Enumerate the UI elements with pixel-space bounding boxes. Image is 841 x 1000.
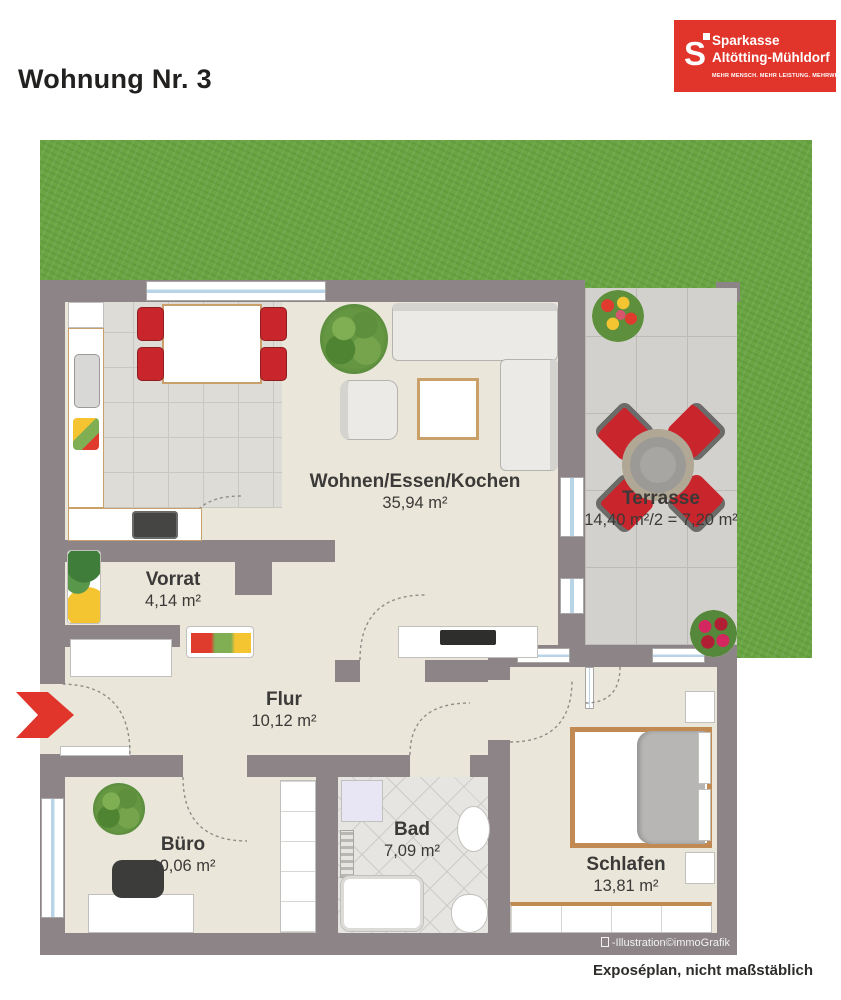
nightstand-2 xyxy=(685,852,715,884)
window-kitchen-top xyxy=(146,281,326,301)
headboard-cushion-1 xyxy=(698,732,711,784)
sofa-top xyxy=(392,303,558,361)
wall-living-hall-a xyxy=(335,660,360,682)
label-office: Büro 10,06 m² xyxy=(150,833,215,876)
wall-hall-bath-b xyxy=(470,755,488,777)
logo-text: Sparkasse Altötting-Mühldorf MEHR MENSCH… xyxy=(706,29,841,85)
label-office-area: 10,06 m² xyxy=(150,856,215,876)
washing-machine xyxy=(341,780,383,822)
wall-hall-bath-a xyxy=(247,755,410,777)
terrace-flowerpot-top xyxy=(592,290,644,342)
headboard-cushion-2 xyxy=(698,789,711,841)
label-bedroom-name: Schlafen xyxy=(586,853,665,876)
kitchen-sink xyxy=(74,354,100,408)
label-hall-name: Flur xyxy=(251,688,316,711)
wall-hall-office xyxy=(40,755,183,777)
pantry-crates-shelf xyxy=(186,626,254,658)
logo-line1: Sparkasse xyxy=(712,33,841,50)
wardrobe xyxy=(510,902,712,933)
logo-tagline: MEHR MENSCH. MEHR LEISTUNG. MEHRWERT. xyxy=(712,73,841,79)
bedroom-door-opening xyxy=(488,680,510,740)
wall-bath-bedroom-a xyxy=(488,667,510,680)
armchair xyxy=(340,380,398,440)
logo-line2: Altötting-Mühldorf xyxy=(712,50,841,67)
tv xyxy=(440,630,496,645)
living-plant xyxy=(320,304,388,374)
shower xyxy=(340,875,424,932)
bedroom-door-arc xyxy=(508,678,574,744)
wall-pantry-stub xyxy=(235,540,272,595)
kitchen-stove xyxy=(132,511,178,539)
wall-bath-bedroom-b xyxy=(488,740,510,933)
dining-chair-3 xyxy=(260,307,287,341)
dining-chair-2 xyxy=(137,347,164,381)
illustration-credit-text: -Illustration©immoGrafik xyxy=(612,937,730,949)
office-plant xyxy=(93,783,145,835)
label-terrace-name: Terrasse xyxy=(584,487,738,510)
terrace-glass-door xyxy=(560,477,584,537)
dining-table xyxy=(162,304,262,384)
window-office-left xyxy=(41,798,64,918)
towel-radiator xyxy=(340,830,354,878)
page-title: Wohnung Nr. 3 xyxy=(18,64,212,95)
label-living-area: 35,94 m² xyxy=(310,493,521,513)
bath-door-arc xyxy=(408,701,472,757)
label-hall-area: 10,12 m² xyxy=(251,711,316,731)
coffee-table xyxy=(417,378,479,440)
label-bath-area: 7,09 m² xyxy=(384,841,440,861)
floorplan-page: Wohnung Nr. 3 S Sparkasse Altötting-Mühl… xyxy=(0,0,841,1000)
label-pantry: Vorrat 4,14 m² xyxy=(145,568,201,611)
sparkasse-logo: S Sparkasse Altötting-Mühldorf MEHR MENS… xyxy=(674,20,836,92)
label-bath: Bad 7,09 m² xyxy=(384,818,440,861)
washbasin xyxy=(457,806,490,852)
label-bedroom-area: 13,81 m² xyxy=(586,876,665,896)
pantry-shelf xyxy=(67,550,101,624)
label-terrace-area: 14,40 m²/2 = 7,20 m² xyxy=(584,510,738,530)
bedroom-terrace-door-arc xyxy=(583,665,625,707)
dining-chair-1 xyxy=(137,307,164,341)
grass-right xyxy=(737,286,812,658)
kitchen-food-decor xyxy=(73,418,99,450)
toilet xyxy=(451,894,488,933)
grass-top xyxy=(40,140,812,288)
bed-blanket xyxy=(637,731,705,844)
label-living-name: Wohnen/Essen/Kochen xyxy=(310,470,521,493)
label-bath-name: Bad xyxy=(384,818,440,841)
terrace-flowerpot-bottom xyxy=(690,610,737,657)
label-bedroom: Schlafen 13,81 m² xyxy=(586,853,665,896)
label-pantry-area: 4,14 m² xyxy=(145,591,201,611)
office-closet xyxy=(280,780,316,933)
dining-chair-4 xyxy=(260,347,287,381)
office-desk xyxy=(88,894,194,933)
window-living-right xyxy=(560,578,584,614)
immografik-icon xyxy=(601,937,609,947)
sofa-right xyxy=(500,359,558,471)
nightstand-1 xyxy=(685,691,715,723)
wall-office-bath xyxy=(316,777,338,933)
sparkasse-s-icon: S xyxy=(684,29,706,85)
label-pantry-name: Vorrat xyxy=(145,568,201,591)
label-living: Wohnen/Essen/Kochen 35,94 m² xyxy=(310,470,521,513)
label-hall: Flur 10,12 m² xyxy=(251,688,316,731)
wall-living-hall-b xyxy=(425,660,488,682)
floor-plan: Wohnen/Essen/Kochen 35,94 m² Terrasse 14… xyxy=(40,140,812,955)
label-office-name: Büro xyxy=(150,833,215,856)
hall-sideboard xyxy=(70,639,172,677)
kitchen-tall-unit xyxy=(68,302,104,328)
label-terrace: Terrasse 14,40 m²/2 = 7,20 m² xyxy=(584,487,738,530)
scale-note: Exposéplan, nicht maßstäblich xyxy=(593,962,813,979)
illustration-credit: -Illustration©immoGrafik xyxy=(380,936,730,949)
